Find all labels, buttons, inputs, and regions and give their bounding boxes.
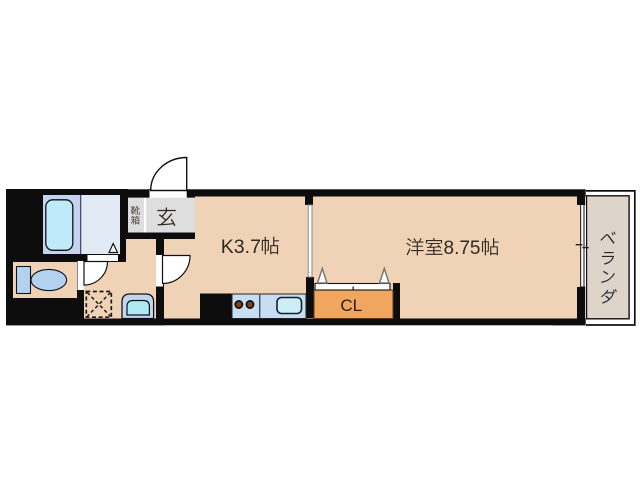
- svg-text:CL: CL: [340, 296, 362, 315]
- svg-text:K3.7: K3.7: [221, 236, 261, 258]
- svg-text:8.75: 8.75: [444, 238, 481, 259]
